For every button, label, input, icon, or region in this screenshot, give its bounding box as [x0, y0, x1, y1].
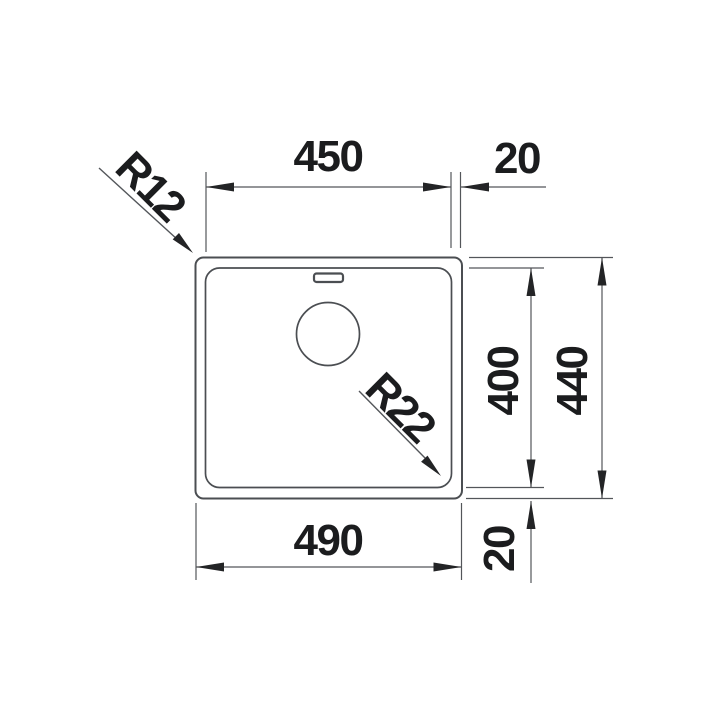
- arrow-bowl-depth-top: [527, 268, 536, 296]
- arrow-rim-offset-bottom: [527, 501, 536, 529]
- dim-label-bowl-depth: 400: [482, 347, 526, 416]
- arrow-bowl-radius: [421, 456, 441, 476]
- arrow-overall-depth-bottom: [598, 471, 607, 499]
- arrow-bowl-depth-bottom: [527, 460, 536, 488]
- dim-label-rim-offset-bottom: 20: [478, 526, 522, 572]
- sink-dimension-drawing: 450 20 400 440 490 20 R12 R22: [0, 0, 720, 720]
- arrow-bowl-width-left: [206, 183, 234, 192]
- arrow-overall-width-right: [434, 563, 462, 572]
- sink-bowl-outline: [206, 268, 452, 488]
- dim-label-bowl-width: 450: [294, 135, 363, 179]
- arrow-overall-depth-top: [598, 258, 607, 286]
- drawing-geometry: [0, 0, 720, 720]
- arrow-overall-width-left: [196, 563, 224, 572]
- drain-hole: [297, 303, 360, 366]
- arrow-outer-radius: [173, 233, 193, 253]
- arrow-rim-offset-top: [461, 183, 489, 192]
- dim-label-overall-width: 490: [294, 519, 363, 563]
- dim-label-rim-offset-top: 20: [494, 137, 540, 181]
- overflow-slot: [314, 274, 343, 283]
- arrow-bowl-width-right: [423, 183, 451, 192]
- dim-label-overall-depth: 440: [551, 347, 595, 416]
